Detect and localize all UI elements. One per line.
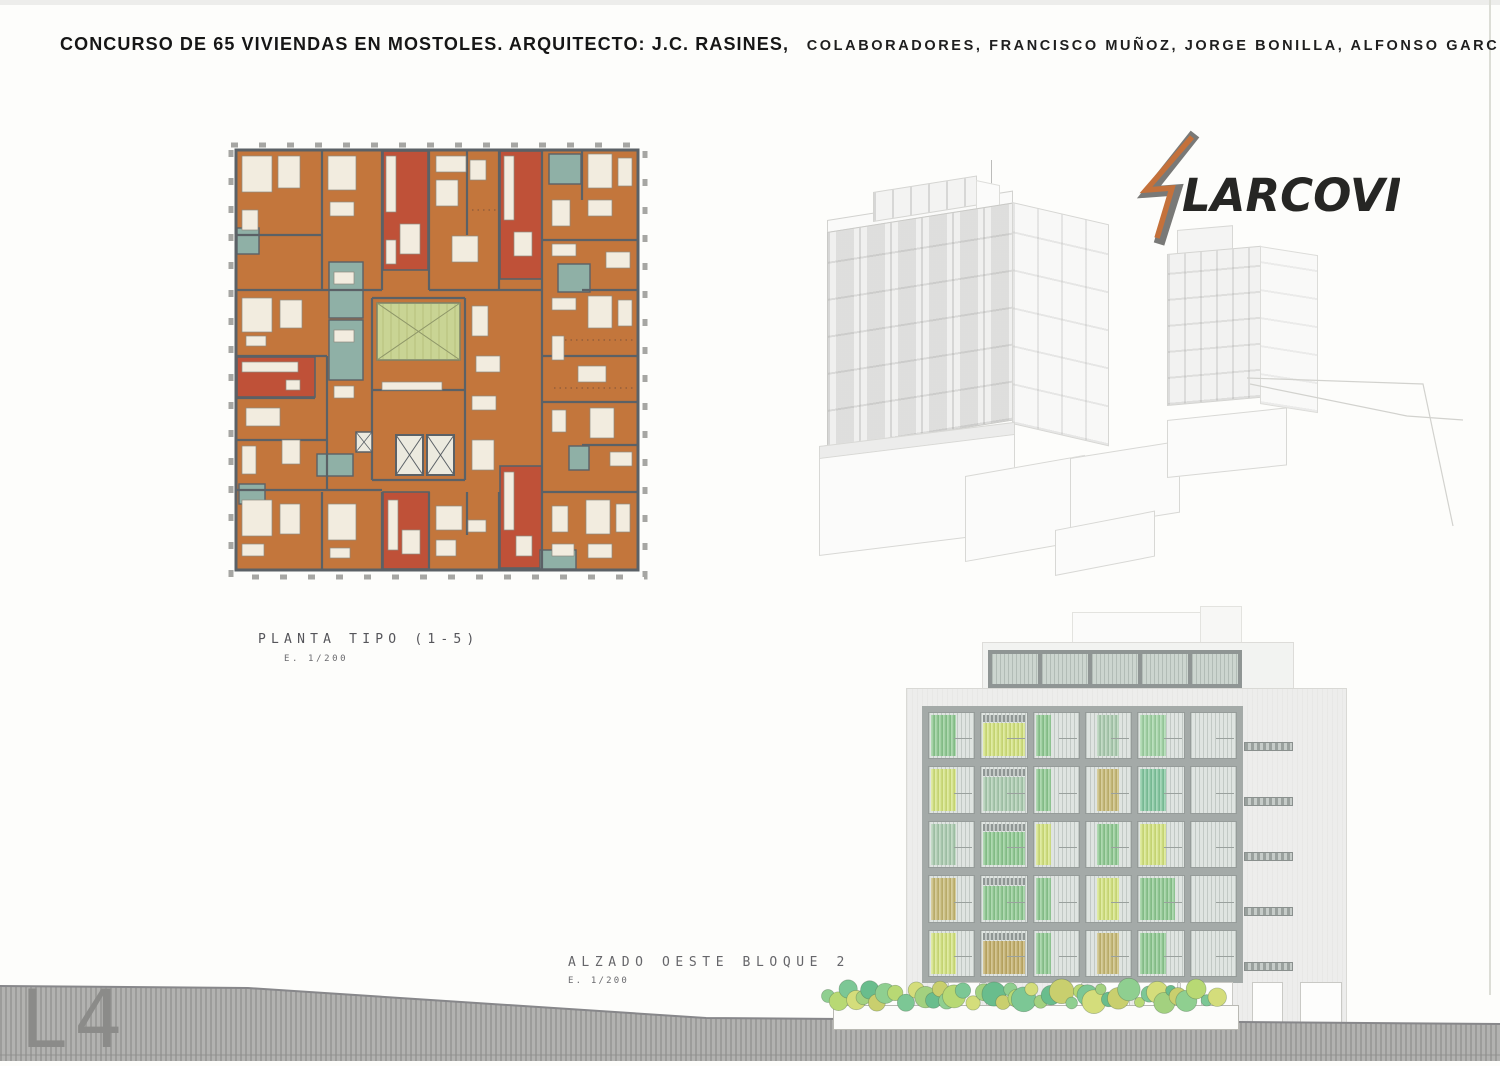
floor-plan-svg — [222, 140, 668, 596]
furniture — [468, 520, 486, 532]
shrub — [1025, 983, 1038, 996]
furniture — [588, 200, 612, 216]
facade-cell — [1085, 766, 1132, 813]
furniture — [504, 156, 514, 220]
facade-colored-panel — [1140, 769, 1165, 810]
furniture — [552, 336, 564, 360]
facade-cell — [1137, 821, 1184, 868]
shrub — [1095, 984, 1106, 995]
facade-cell — [1190, 821, 1237, 868]
furniture — [242, 362, 298, 372]
glazing-pane — [992, 654, 1038, 684]
shrub — [1066, 997, 1078, 1009]
furniture — [470, 160, 486, 180]
floor-plan-drawing — [222, 140, 668, 596]
elevation-roof-bulkhead — [1072, 612, 1204, 644]
furniture — [246, 336, 266, 346]
facade-cell — [1137, 712, 1184, 759]
facade-cell — [928, 875, 975, 922]
facade-cell — [1085, 712, 1132, 759]
facade-cell — [928, 712, 975, 759]
furniture — [606, 252, 630, 268]
furniture — [618, 158, 632, 186]
furniture — [514, 232, 532, 256]
balcony-slab — [1244, 742, 1293, 751]
facade-colored-panel — [931, 878, 956, 919]
furniture — [330, 202, 354, 216]
furniture — [552, 298, 576, 310]
facade-colored-panel — [1097, 878, 1118, 919]
glazing-pane — [1042, 654, 1088, 684]
furniture — [590, 408, 614, 438]
facade-cell — [1085, 821, 1132, 868]
furniture — [504, 472, 514, 530]
furniture — [382, 382, 442, 390]
shrub — [955, 983, 970, 998]
facade-cell — [1033, 712, 1080, 759]
facade-cell — [1085, 875, 1132, 922]
facade-colored-panel — [931, 715, 956, 756]
furniture — [588, 544, 612, 558]
shrub — [1208, 988, 1226, 1006]
furniture — [242, 210, 258, 230]
facade-cell — [1137, 875, 1184, 922]
facade-cell — [1033, 875, 1080, 922]
balcony-slab — [1244, 852, 1293, 861]
furniture — [246, 408, 280, 426]
facade-cell — [980, 875, 1027, 922]
furniture — [330, 548, 350, 558]
elevation-penthouse-glazing — [988, 650, 1242, 688]
furniture — [388, 500, 398, 550]
furniture — [588, 296, 612, 328]
balcony-slab — [1244, 797, 1293, 806]
elevation-scale: E. 1/200 — [568, 976, 629, 986]
facade-cell — [928, 766, 975, 813]
furniture — [282, 440, 300, 464]
facade-colored-panel — [1140, 715, 1165, 756]
furniture — [552, 544, 574, 556]
furniture — [400, 224, 420, 254]
furniture — [402, 530, 420, 554]
furniture — [610, 452, 632, 466]
furniture — [452, 236, 478, 262]
furniture — [516, 536, 532, 556]
furniture — [286, 380, 300, 390]
facade-colored-panel — [931, 824, 956, 865]
facade-colored-panel — [1097, 824, 1118, 865]
ground-floor-opening — [1252, 982, 1283, 1032]
furniture — [476, 356, 500, 372]
furniture — [616, 504, 630, 532]
facade-colored-panel — [1036, 878, 1051, 919]
facade-colored-panel — [1140, 878, 1174, 919]
title-block: CONCURSO DE 65 VIVIENDAS EN MOSTOLES. AR… — [60, 34, 1500, 55]
furniture — [578, 366, 606, 382]
logo-wordmark: LARCOVI — [1182, 169, 1400, 222]
ground-floor-opening — [1300, 982, 1342, 1032]
facade-colored-panel — [1036, 715, 1051, 756]
facade-cell — [1033, 821, 1080, 868]
furniture — [242, 500, 272, 536]
facade-colored-panel — [983, 777, 1024, 810]
floor-plan-label: PLANTA TIPO (1-5) — [258, 632, 479, 647]
elevation-facade-grid — [922, 706, 1243, 983]
facade-colored-panel — [1140, 824, 1165, 865]
plan-courtyard — [377, 303, 460, 360]
furniture — [552, 200, 570, 226]
shrub — [1118, 978, 1141, 1001]
facade-cell — [928, 821, 975, 868]
furniture — [386, 156, 396, 212]
facade-cell — [980, 712, 1027, 759]
glazing-pane — [1092, 654, 1138, 684]
furniture — [552, 506, 568, 532]
furniture — [242, 156, 272, 192]
facade-colored-panel — [983, 886, 1024, 919]
furniture — [334, 330, 354, 342]
elevation-penthouse-slab — [982, 642, 1294, 690]
larcovi-logo: LARCOVI — [1120, 126, 1400, 254]
glazing-pane — [1142, 654, 1188, 684]
furniture — [436, 180, 458, 206]
floor-plan-scale: E. 1/200 — [284, 654, 348, 664]
furniture — [472, 440, 494, 470]
facade-colored-panel — [1036, 824, 1051, 865]
balcony-slab — [1244, 907, 1293, 916]
furniture — [242, 298, 272, 332]
furniture — [436, 506, 462, 530]
facade-cell — [980, 766, 1027, 813]
furniture — [472, 396, 496, 410]
furniture — [334, 386, 354, 398]
furniture — [280, 300, 302, 328]
elevation-roof-bulkhead — [1200, 606, 1242, 644]
facade-cell — [1190, 875, 1237, 922]
board-collaborators: COLABORADORES, FRANCISCO MUÑOZ, JORGE BO… — [807, 38, 1500, 54]
furniture — [278, 156, 300, 188]
facade-colored-panel — [931, 769, 956, 810]
board-title: CONCURSO DE 65 VIVIENDAS EN MOSTOLES. AR… — [60, 34, 789, 54]
furniture — [552, 244, 576, 256]
balcony-slab — [1244, 962, 1293, 971]
furniture — [242, 446, 256, 474]
facade-colored-panel — [1097, 715, 1118, 756]
furniture — [552, 410, 566, 432]
facade-cell — [1190, 712, 1237, 759]
facade-cell — [1137, 766, 1184, 813]
furniture — [588, 154, 612, 188]
facade-colored-panel — [983, 832, 1024, 865]
furniture — [586, 500, 610, 534]
furniture — [386, 240, 396, 264]
glazing-pane — [1192, 654, 1238, 684]
furniture — [436, 156, 466, 172]
furniture — [472, 306, 488, 336]
furniture — [280, 504, 300, 534]
furniture — [328, 504, 356, 540]
furniture — [436, 540, 456, 556]
furniture — [242, 544, 264, 556]
elevation-label: ALZADO OESTE BLOQUE 2 — [568, 955, 850, 970]
facade-cell — [1190, 766, 1237, 813]
furniture — [328, 156, 356, 190]
sheet-number: L4 — [20, 980, 128, 1060]
furniture — [618, 300, 632, 326]
facade-cell — [980, 821, 1027, 868]
scan-edge-top — [0, 0, 1500, 5]
facade-colored-panel — [983, 723, 1024, 756]
elevation-shrubs — [818, 960, 1248, 1032]
facade-colored-panel — [1036, 769, 1051, 810]
facade-colored-panel — [1097, 769, 1118, 810]
presentation-board: { "header": { "title_main": "CONCURSO DE… — [0, 0, 1500, 1061]
furniture — [334, 272, 354, 284]
facade-cell — [1033, 766, 1080, 813]
